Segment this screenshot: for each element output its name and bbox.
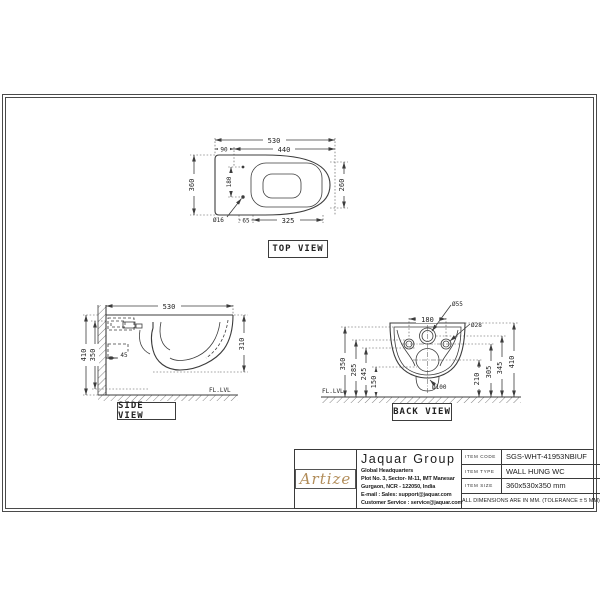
address-line-2: Plot No. 3, Sector- M-11, IMT Manesar [361,476,458,484]
address-line-4: E-mail : Sales: support@jaquar.com [361,492,458,500]
side-dim-45: 45 [120,352,128,359]
top-dim-325: 325 [282,217,295,225]
back-view-label: BACK VIEW [392,403,452,421]
top-view-label-text: TOP VIEW [272,244,323,254]
company-name: Jaquar Group [361,452,458,466]
top-view-dimensions: 530 90 440 360 180 260 65 325 Ø16 [188,137,348,226]
title-block: Artize Jaquar Group Global Headquarters … [294,449,594,509]
back-dim-dia55: Ø55 [452,301,463,308]
back-dim-350: 350 [339,358,347,371]
back-dim-345: 345 [496,362,504,375]
back-dim-150: 150 [370,376,378,389]
item-code-value: SGS-WHT-41953NBIUF [502,450,600,464]
top-dim-260: 260 [338,179,346,192]
item-size-value: 360x530x350 mm [502,479,600,493]
top-dim-dia16: Ø16 [213,217,224,224]
side-view-label-text: SIDE VIEW [118,401,175,421]
top-dim-440: 440 [278,146,291,154]
top-view-drawing: 530 90 440 360 180 260 65 325 Ø16 [163,116,363,262]
company-cell: Jaquar Group Global Headquarters Plot No… [357,450,462,508]
back-view-dimensions: 180 Ø55 Ø28 Ø100 350 285 245 150 210 [322,301,518,397]
side-dim-410: 410 [80,349,88,362]
item-code-row: ITEM CODE SGS-WHT-41953NBIUF [462,450,600,465]
top-view-label: TOP VIEW [268,240,328,258]
top-dim-65: 65 [242,218,250,225]
back-dim-210: 210 [473,373,481,386]
back-view-label-text: BACK VIEW [393,407,451,417]
item-info-table: ITEM CODE SGS-WHT-41953NBIUF ITEM TYPE W… [462,450,600,508]
item-type-value: WALL HUNG WC [502,465,600,479]
address-line-1: Global Headquarters [361,468,458,476]
company-address: Global Headquarters Plot No. 3, Sector- … [361,468,458,508]
top-dim-360: 360 [188,179,196,192]
back-dim-285: 285 [350,364,358,377]
address-line-3: Gurgaon, NCR - 122050, India [361,484,458,492]
side-dim-350: 350 [89,349,97,362]
back-dim-410: 410 [508,356,516,369]
side-dim-530: 530 [163,303,176,311]
item-type-row: ITEM TYPE WALL HUNG WC [462,465,600,480]
back-floor-level-label: FL.LVL [322,388,344,395]
top-dim-180: 180 [226,176,233,187]
item-type-label: ITEM TYPE [462,465,502,479]
drawing-sheet: { "views": { "top": { "title": "TOP VIEW… [0,0,600,600]
address-line-5: Customer Service : service@jaquar.com [361,500,458,508]
back-dim-305: 305 [485,366,493,379]
artize-logo: Artize [295,469,357,489]
item-size-row: ITEM SIZE 360x530x350 mm [462,479,600,494]
back-dim-dia100: Ø100 [432,384,447,391]
tolerance-note: ALL DIMENSIONS ARE IN MM. (TOLERANCE ± 5… [462,494,600,508]
back-dim-245: 245 [360,368,368,381]
top-dim-530: 530 [268,137,281,145]
side-dim-310: 310 [238,338,246,351]
top-dim-90: 90 [220,147,228,154]
item-code-label: ITEM CODE [462,450,502,464]
item-size-label: ITEM SIZE [462,479,502,493]
tolerance-row: ALL DIMENSIONS ARE IN MM. (TOLERANCE ± 5… [462,494,600,508]
side-floor-level-label: FL.LVL [209,387,231,394]
back-dim-180: 180 [421,316,434,324]
brand-logo-cell: Artize [295,450,357,508]
side-view-label: SIDE VIEW [117,402,176,420]
